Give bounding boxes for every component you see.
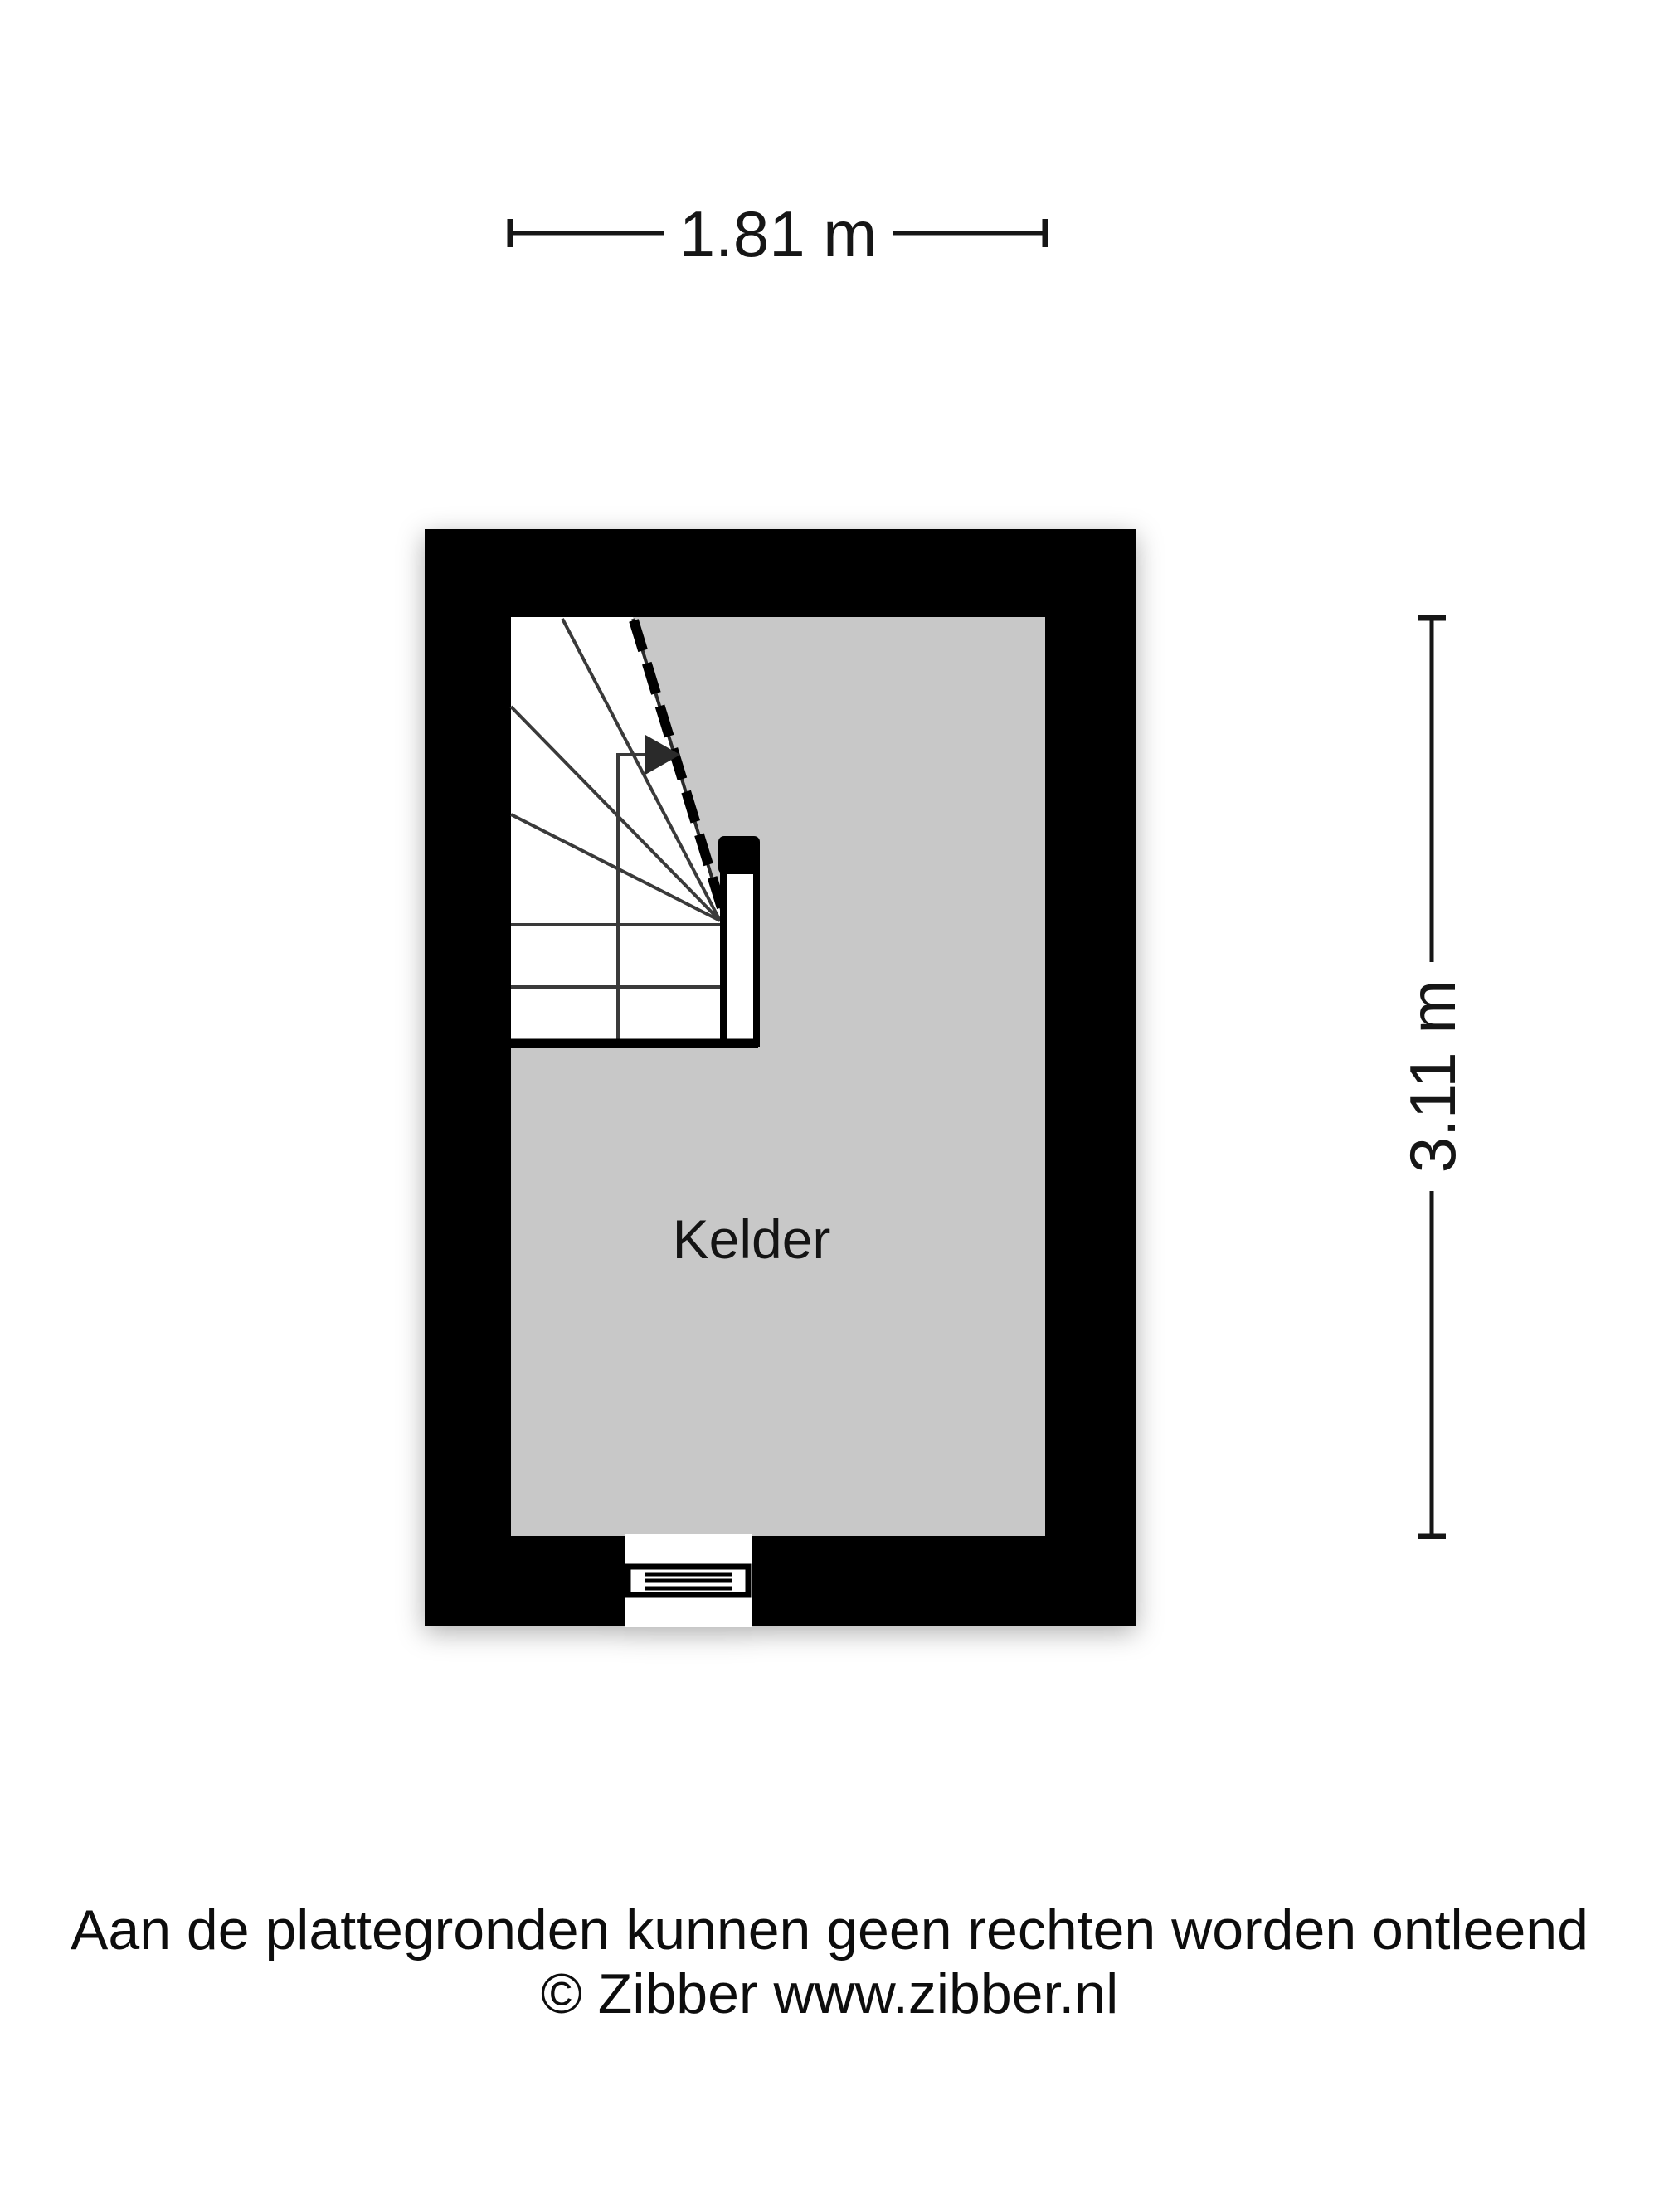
footer: Aan de plattegronden kunnen geen rechten… [71,1898,1588,2025]
stair-newel-post [718,836,760,874]
width-dimension: 1.81 m [510,192,1045,274]
floor-plan-canvas: 1.81 m 3.11 m [0,0,1659,2212]
height-dimension-label: 3.11 m [1396,980,1469,1174]
disclaimer-text: Aan de plattegronden kunnen geen rechten… [71,1898,1588,1962]
stair-handrail [723,869,757,1043]
room-label: Kelder [673,1208,831,1270]
kelder-plan: Kelder [425,529,1136,1627]
cellar-door [625,1534,752,1627]
copyright-text: © Zibber www.zibber.nl [541,1962,1118,2025]
height-dimension: 3.11 m [1391,618,1472,1536]
floorplan-page: 1.81 m 3.11 m [0,0,1659,2212]
width-dimension-label: 1.81 m [679,197,877,270]
